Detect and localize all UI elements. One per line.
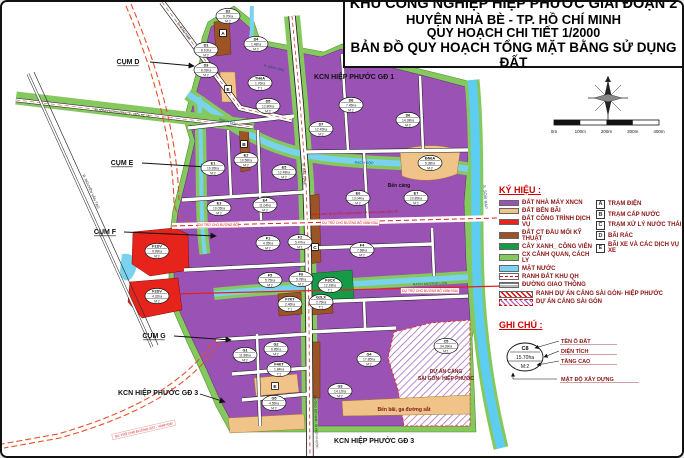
svg-text:M:2: M:2 [427,166,433,170]
svg-text:F3CX: F3CX [325,278,335,282]
legend-swatch [499,200,519,207]
map-label: RẠCH ĐỘP [354,160,374,166]
parcel-label-E3: E310.05haM:2 [207,200,231,215]
map-sheet: 0m100m200m300m400m KCN HIỆP PHƯỚC GĐ 1KC… [0,0,684,458]
legend-wide-item-label: RANH DỰ ÁN CẢNG SÀI GÒN- HIỆP PHƯỚC [536,291,663,297]
svg-text:9.99ha: 9.99ha [152,250,162,254]
legend-letter-items: ATRẠM ĐIỆNBTRẠM CẤP NƯỚCCTRẠM XỬ LÝ NƯỚC… [596,198,682,256]
svg-text:G2: G2 [273,342,278,346]
legend-letter-box: B [596,210,605,219]
legend-item-label: ĐẤT NHÀ MÁY XNCN [522,200,583,206]
parcel-label-F5: F55.75haM:2 [258,272,282,287]
svg-text:DỰ TRỮ CHO ĐƯỜNG BỘ VÀNH ĐAI: DỰ TRỮ CHO ĐƯỜNG BỘ VÀNH ĐAI [402,288,458,293]
map-label: CỤM E [111,160,134,167]
svg-text:T:1: T:1 [328,288,333,292]
svg-text:M:2: M:2 [253,47,259,51]
svg-text:D6: D6 [406,113,411,117]
svg-text:2.46ha: 2.46ha [285,303,295,307]
svg-text:M:2: M:2 [359,253,365,257]
svg-text:ĐN6A: ĐN6A [425,156,436,160]
svg-text:F2DV: F2DV [152,289,162,293]
svg-text:34.39ha: 34.39ha [440,345,452,349]
svg-text:Bến bãi, ga đường sắt: Bến bãi, ga đường sắt [377,406,430,413]
legend-swatch [499,265,519,272]
svg-text:M:2: M:2 [225,19,231,23]
svg-text:M:2: M:2 [366,362,372,366]
svg-text:B: B [242,142,246,148]
parcel-label-F2: F25.47haM:1 [288,234,312,249]
svg-text:F1: F1 [266,236,270,240]
utility-marker-B: B [241,141,248,148]
svg-text:D2: D2 [226,9,231,13]
svg-text:12.80ha: 12.80ha [262,105,274,109]
legend-wide-items: RANH DỰ ÁN CẢNG SÀI GÒN- HIỆP PHƯỚCDỰ ÁN… [499,291,682,306]
legend-swatch [499,208,519,215]
svg-text:SÀI GÒN- HIỆP PHƯỚC: SÀI GÒN- HIỆP PHƯỚC [418,374,474,382]
svg-text:4.32ha: 4.32ha [152,295,162,299]
svg-text:11.88ha: 11.88ha [239,354,251,358]
legend-item: ĐẤT NHÀ MÁY XNCN [499,200,596,207]
notes-header: GHI CHÚ : [499,320,679,330]
svg-text:M:2: M:2 [271,406,277,410]
svg-text:F6: F6 [299,272,303,276]
svg-text:CỤM G: CỤM G [142,333,166,340]
svg-text:M:2: M:2 [273,352,279,356]
svg-text:D8: D8 [349,98,354,102]
legend-item: RANH ĐẤT KHU QH [499,273,596,280]
sample-parcel-area: 15.70ha [516,355,534,361]
svg-text:CỤM D: CỤM D [117,59,140,66]
parcel-label-TH6A: TH6A1.76haT:1 [248,75,272,90]
svg-text:E7: E7 [414,191,419,195]
svg-text:M:2: M:2 [318,132,324,136]
parcel-label-D6: D614.38haM:2 [396,112,420,127]
svg-text:7.68ha: 7.68ha [357,249,367,253]
svg-text:1.48ha: 1.48ha [251,43,261,47]
legend-letter-label: TRẠM XỬ LÝ NƯỚC THẢI [608,222,681,228]
legend-item-label: ĐẤT CT ĐẦU MỐI KỸ THUẬT [522,230,596,242]
utility-marker-E: E [225,86,232,93]
parcel-label-F1: F14.35haM:2 [256,235,280,250]
svg-text:D5: D5 [266,99,271,103]
legend-swatch [499,299,533,306]
legend-letter-label: BÃI RÁC [608,233,633,239]
svg-text:F7KT: F7KT [285,297,295,301]
parcel-label-F6: F65.78haM:2 [289,271,313,286]
svg-text:4.35ha: 4.35ha [263,242,273,246]
svg-text:G5: G5 [271,396,276,400]
legend-letter-box: E [596,244,605,253]
legend-item: ĐẤT CÔNG TRÌNH DỊCH VỤ [499,216,596,228]
svg-text:T:1: T:1 [277,372,282,376]
scale-label: 200m [601,129,613,134]
legend-item: CX CẢNH QUAN, CÁCH LY [499,252,596,264]
svg-text:DỰ ÁN CẢNG: DỰ ÁN CẢNG [430,368,463,375]
legend-item-label: ĐẤT BẾN BÃI [522,208,561,214]
svg-text:M:2: M:2 [203,73,209,77]
parcel-label-E2: E210.58haM:2 [234,152,258,167]
legend-letter-label: BÃI XE VÀ CÁC DỊCH VỤ XE [608,242,682,254]
parcel-label-G2LX: G2LX2.75haT:1 [309,294,333,309]
utility-marker-E: E [272,383,279,390]
map-label: CỤM F [94,229,117,236]
svg-text:1.84ha: 1.84ha [274,368,284,372]
svg-text:14.12ha: 14.12ha [334,390,346,394]
parcel-label-F3CX: F3CX12.18haT:1 [318,277,342,292]
title-block: KHU CÔNG NGHIỆP HIỆP PHƯỚC GIAI ĐOẠN 2 H… [343,2,682,68]
svg-text:14.38ha: 14.38ha [402,119,414,123]
parcel-label-ĐN6A: ĐN6A5.38haM:2 [418,155,442,170]
legend-item-label: CX CẢNH QUAN, CÁCH LY [522,252,596,264]
legend-wide-item: DỰ ÁN CẢNG SÀI GÒN [499,299,682,306]
parcel-label-D3: D38.03haM:2 [194,62,218,77]
svg-text:M:2: M:2 [298,282,304,286]
parcel-label-E5: E512.48haM:2 [272,164,296,179]
legend-color-items: ĐẤT NHÀ MÁY XNCNĐẤT BẾN BÃIĐẤT CÔNG TRÌN… [499,198,596,290]
svg-text:M:2: M:2 [154,299,160,303]
parcel-label-F1DV: F1DV9.99haM:2 [145,243,169,258]
legend-item: ĐẤT CT ĐẦU MỐI KỸ THUẬT [499,230,596,242]
legend-wide-item: RANH DỰ ÁN CẢNG SÀI GÒN- HIỆP PHƯỚC [499,291,682,298]
parcel-label-E4: E411.04haM:2 [253,197,277,212]
svg-text:M:2: M:2 [337,394,343,398]
svg-text:F2: F2 [298,235,302,239]
svg-text:M:2: M:2 [203,53,209,57]
parcel-label-D5: D512.80haM:2 [256,98,280,113]
svg-text:C5: C5 [444,339,449,343]
legend-item: ĐẤT BẾN BÃI [499,208,596,215]
legend-wide-item-label: DỰ ÁN CẢNG SÀI GÒN [536,299,602,305]
parcel-label-G1: G111.88haM:2 [233,347,257,362]
svg-text:G2LX: G2LX [316,295,326,299]
title-line-3: QUY HOẠCH CHI TIẾT 1/2000 [427,27,600,41]
parcel-label-D2: D29.70haM:2 [216,8,240,23]
svg-text:M:2: M:2 [265,246,271,250]
svg-text:T:1: T:1 [319,305,324,309]
legend-swatch [499,219,519,226]
parcel-label-G5: G54.55haM:2 [262,395,286,410]
svg-text:M:2: M:2 [216,211,222,215]
sample-parcel-id: C8 [521,346,528,352]
svg-text:M:2: M:2 [243,163,249,167]
parcel-label-G3: G314.12haM:2 [328,383,352,398]
svg-text:5.75ha: 5.75ha [265,279,275,283]
map-label: DỰ TRỮ CHO ĐƯỜNG BỘ VÀNH ĐAI [321,220,380,226]
legend-swatch [499,291,533,298]
legend-letter-item: EBÃI XE VÀ CÁC DỊCH VỤ XE [596,242,682,254]
map-label: CỤM G [142,333,166,340]
map-label: KCN HIỆP PHƯỚC GĐ 3 [334,436,414,445]
legend-item-label: ĐƯỜNG GIAO THÔNG [522,282,586,288]
svg-text:7.45ha: 7.45ha [346,104,356,108]
svg-text:9.70ha: 9.70ha [223,15,233,19]
svg-text:Bến cảng: Bến cảng [388,182,411,189]
legend-panel: KÝ HIỆU : ĐẤT NHÀ MÁY XNCNĐẤT BẾN BÃIĐẤT… [499,185,682,307]
svg-text:C: C [313,245,317,251]
svg-text:17.85ha: 17.85ha [363,358,375,362]
legend-letter-item: ATRẠM ĐIỆN [596,200,682,209]
svg-text:M:2: M:2 [281,175,287,179]
svg-text:CỤM E: CỤM E [111,160,134,167]
svg-text:M:2: M:2 [154,254,160,258]
legend-letter-item: CTRẠM XỬ LÝ NƯỚC THẢI [596,221,682,230]
sample-parcel-floors: M:2 [521,364,530,370]
legend-item-label: MẶT NƯỚC [522,266,555,272]
legend-swatch [499,273,519,280]
svg-text:KCN HIỆP PHƯỚC GĐ 1: KCN HIỆP PHƯỚC GĐ 1 [314,72,394,81]
legend-header: KÝ HIỆU : [499,185,682,195]
svg-text:5.78ha: 5.78ha [296,278,306,282]
parcel-label-F7KT: F7KT2.46haT:1 [278,296,302,311]
legend-letter-label: TRẠM CẤP NƯỚC [608,212,660,218]
svg-text:4.55ha: 4.55ha [269,402,279,406]
map-label: Bến bãi, ga đường sắt [377,406,430,413]
parcel-label-E7: E710.89haM:2 [404,190,428,205]
svg-text:D1: D1 [204,43,209,47]
svg-text:M:2: M:2 [267,283,273,287]
svg-text:2.75ha: 2.75ha [316,301,326,305]
svg-text:12.45ha: 12.45ha [315,128,327,132]
parcel-label-F4: F47.68haM:2 [350,242,374,257]
parcel-label-C5: C534.39haM:1 [434,338,458,353]
parcel-label-E6: E613.04haM:2 [346,190,370,205]
legend-letter-box: C [596,221,605,230]
svg-text:M:2: M:2 [242,358,248,362]
svg-text:T:1: T:1 [288,307,293,311]
legend-letter-box: D [596,231,605,240]
svg-text:13.04ha: 13.04ha [352,197,364,201]
title-line-4: BẢN ĐỒ QUY HOẠCH TỔNG MẶT BẰNG SỬ DỤNG Đ… [347,41,680,71]
legend-item: ĐƯỜNG GIAO THÔNG [499,282,596,289]
legend-swatch [499,282,519,289]
legend-item-label: ĐẤT CÔNG TRÌNH DỊCH VỤ [522,216,596,228]
map-label: DỰ TRỮ CHO ĐƯỜNG BỘ VÀNH ĐAI [401,288,460,294]
svg-text:E1: E1 [211,161,216,165]
svg-text:12.48ha: 12.48ha [278,171,290,175]
legend-letter-item: DBÃI RÁC [596,231,682,240]
map-label: KCN HIỆP PHƯỚC GĐ 1 [314,72,394,81]
parcel-label-D1: D18.10haM:2 [194,42,218,57]
note-label-mat-do: MẬT ĐỘ XÂY DỰNG [561,375,614,383]
svg-text:11.04ha: 11.04ha [259,204,271,208]
svg-text:D3: D3 [204,63,209,67]
parcel-label-D7: D712.45haM:2 [309,121,333,136]
parcel-label-E1: E110.95haM:2 [201,160,225,175]
notes-diagram: C8 15.70ha M:2 TÊN Ô ĐẤT DIỆN TÍCH TẦNG … [499,333,679,397]
legend-letter-box: A [596,200,605,209]
svg-text:KCN HIỆP PHƯỚC GĐ 3: KCN HIỆP PHƯỚC GĐ 3 [118,388,198,397]
svg-text:F5: F5 [268,273,272,277]
svg-text:10.89ha: 10.89ha [410,197,422,201]
legend-item-label: RANH ĐẤT KHU QH [522,274,579,280]
map-label: KCN HIỆP PHƯỚC GĐ 3 [118,388,198,397]
svg-text:F1DV: F1DV [152,244,162,248]
svg-text:G4: G4 [366,352,372,356]
parcel-label-F2DV: F2DV4.32haM:2 [145,288,169,303]
svg-text:M:2: M:2 [265,109,271,113]
map-label: CỤM D [117,59,140,66]
parcel-label-G4: G417.85haM:2 [357,351,381,366]
legend-swatch [499,254,519,261]
svg-text:M:2: M:2 [348,108,354,112]
svg-text:RẠCH ĐỘP: RẠCH ĐỘP [354,160,374,166]
svg-text:M:1: M:1 [443,349,449,353]
map-label: DỰ ÁN CẢNG [430,368,463,375]
svg-text:TH6A: TH6A [255,76,265,80]
parcel-label-G2: G28.85haM:2 [264,341,288,356]
legend-swatch [499,232,519,239]
scale-label: 0m [551,129,558,134]
svg-text:F4KT: F4KT [274,362,284,366]
svg-text:10.05ha: 10.05ha [213,207,225,211]
svg-text:12.18ha: 12.18ha [324,284,336,288]
svg-text:5.38ha: 5.38ha [425,162,435,166]
svg-text:E5: E5 [282,165,287,169]
legend-swatch [499,243,519,250]
svg-text:KCN HIỆP PHƯỚC GĐ 3: KCN HIỆP PHƯỚC GĐ 3 [334,436,414,445]
utility-marker-A: A [220,30,227,37]
svg-text:M:1: M:1 [297,245,303,249]
svg-text:8.03ha: 8.03ha [201,69,211,73]
svg-text:1.76ha: 1.76ha [255,82,265,86]
svg-text:T:1: T:1 [258,86,263,90]
map-label: Bến cảng [388,182,411,189]
legend-letter-label: TRẠM ĐIỆN [608,201,641,207]
legend-item: MẶT NƯỚC [499,265,596,272]
legend-letter-item: BTRẠM CẤP NƯỚC [596,210,682,219]
svg-text:M:2: M:2 [262,208,268,212]
note-label-tang-cao: TẦNG CAO [561,358,591,365]
svg-text:E3: E3 [217,201,222,205]
parcel-label-D8: D87.45haM:2 [339,97,363,112]
svg-text:E6: E6 [356,191,361,195]
svg-text:M:2: M:2 [413,201,419,205]
parcel-label-F4KT: F4KT1.84haT:1 [267,361,291,376]
notes-panel: GHI CHÚ : C8 15.70ha M:2 TÊN Ô ĐẤT DIỆN … [499,320,679,402]
scale-label: 400m [653,129,665,134]
map-label: SÀI GÒN- HIỆP PHƯỚC [418,374,474,382]
svg-text:10.95ha: 10.95ha [207,167,219,171]
utility-marker-C: C [312,244,319,251]
svg-text:D7: D7 [319,122,324,126]
svg-text:CỤM F: CỤM F [94,229,117,236]
svg-text:A: A [221,31,225,37]
svg-text:G3: G3 [337,384,342,388]
note-label-dien-tich: DIỆN TÍCH [561,347,589,355]
svg-text:10.58ha: 10.58ha [240,159,252,163]
svg-text:M:2: M:2 [210,171,216,175]
scale-label: 100m [575,129,587,134]
svg-text:M:2: M:2 [355,201,361,205]
svg-text:E2: E2 [244,153,249,157]
svg-text:G1: G1 [242,348,247,352]
svg-text:DỰ TRỮ CHO ĐƯỜNG BỘ VÀNH ĐAI: DỰ TRỮ CHO ĐƯỜNG BỘ VÀNH ĐAI [322,220,378,225]
note-label-ten-o-dat: TÊN Ô ĐẤT [561,337,591,345]
svg-text:8.85ha: 8.85ha [271,348,281,352]
map-label: DỰ TRỮ CHO ĐƯỜNG BỘ [198,222,239,228]
legend-item: CÂY XANH_ CÔNG VIÊN [499,243,596,250]
svg-text:M:2: M:2 [405,123,411,127]
legend-item-label: CÂY XANH_ CÔNG VIÊN [522,244,592,250]
parcel-label-D4: D41.48haM:2 [244,36,268,51]
svg-text:8.10ha: 8.10ha [201,49,211,53]
svg-text:DỰ TRỮ CHO ĐƯỜNG BỘ: DỰ TRỮ CHO ĐƯỜNG BỘ [198,222,238,227]
svg-text:5.47ha: 5.47ha [295,241,305,245]
scale-label: 300m [627,129,639,134]
